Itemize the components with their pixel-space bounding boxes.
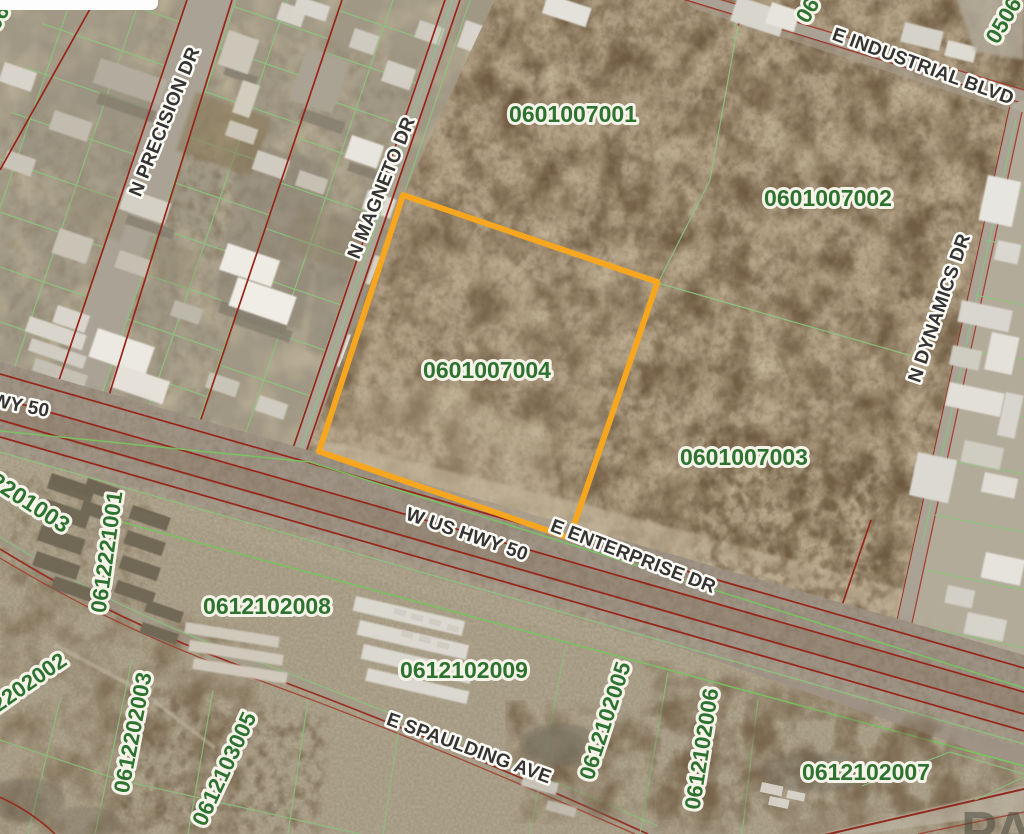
svg-text:0601007004: 0601007004 bbox=[423, 357, 551, 383]
svg-text:0601007003: 0601007003 bbox=[680, 444, 808, 470]
svg-text:0612102008: 0612102008 bbox=[203, 593, 331, 619]
svg-text:PAR: PAR bbox=[961, 801, 1024, 834]
svg-text:0612102007: 0612102007 bbox=[802, 759, 930, 785]
svg-text:0601007002: 0601007002 bbox=[764, 185, 892, 211]
svg-text:0601007001: 0601007001 bbox=[509, 101, 637, 127]
svg-text:0612102009: 0612102009 bbox=[400, 657, 528, 683]
